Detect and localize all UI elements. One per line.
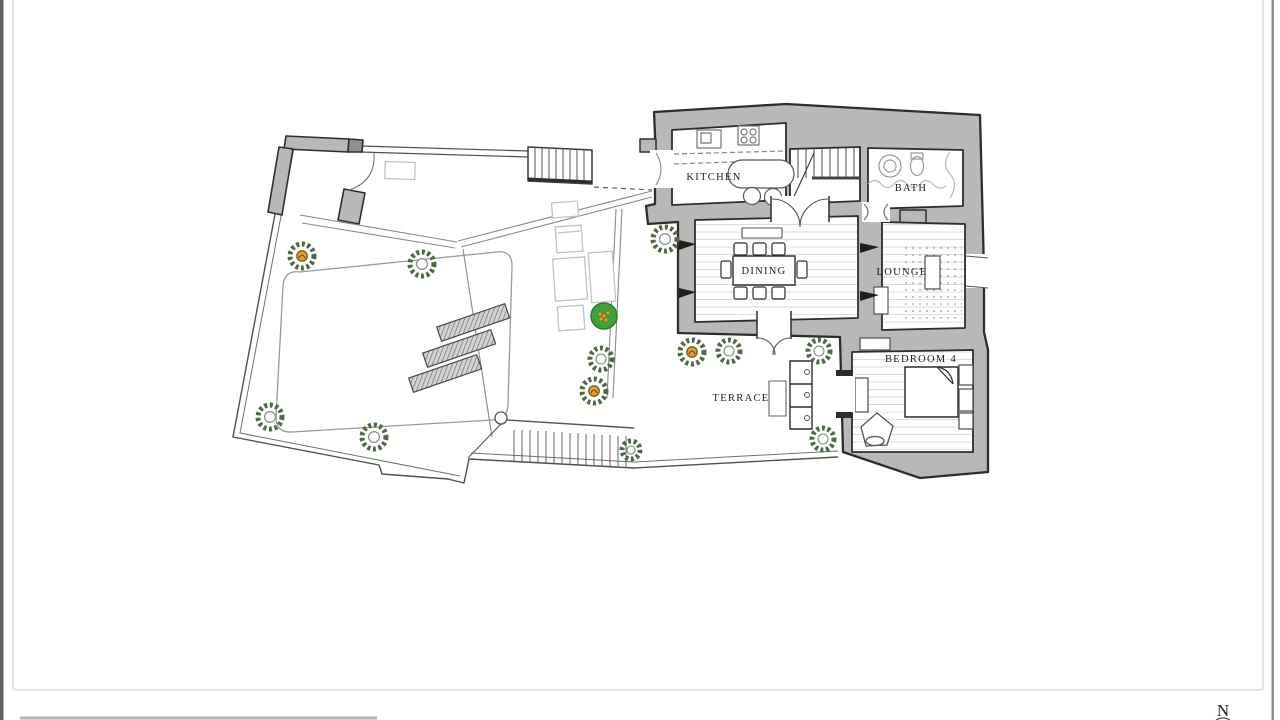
left-edge-strip	[0, 0, 4, 720]
terrace-table	[769, 381, 786, 416]
room-label-terrace: TERRACE	[713, 393, 770, 404]
garden-entry-structure	[268, 136, 374, 224]
plant-bush-icon	[591, 303, 617, 329]
room-stairwell	[790, 147, 860, 204]
sideboard	[742, 228, 782, 238]
terrace-counter	[790, 361, 812, 429]
plant-ring-icon	[622, 441, 640, 459]
page: KITCHENBATHDININGLOUNGETERRACEBEDROOM 4 …	[0, 0, 1280, 720]
plant-ring-icon	[808, 340, 830, 362]
room-label-bedroom4: BEDROOM 4	[885, 354, 957, 365]
floor-plan-svg: KITCHENBATHDININGLOUNGETERRACEBEDROOM 4 …	[0, 0, 1280, 720]
compass: N	[1211, 701, 1235, 720]
plant-accent-icon	[582, 379, 606, 403]
compass-north-label: N	[1217, 701, 1229, 720]
plant-ring-icon	[653, 227, 677, 251]
plant-accent-icon	[680, 340, 704, 364]
door-swing-arc	[349, 153, 374, 190]
room-label-bath: BATH	[895, 183, 928, 194]
dashed-link-line	[594, 187, 652, 190]
garden-top-wall	[360, 146, 528, 157]
terrace-fixtures	[769, 361, 812, 429]
room-label-dining: DINING	[741, 266, 786, 277]
page-frame	[0, 0, 1274, 720]
newel-post	[495, 412, 507, 424]
lounge-wall-bump	[900, 210, 926, 223]
right-edge-strip	[1272, 0, 1275, 720]
terrace-door-arcs	[758, 338, 790, 355]
garden-upper-stairs	[528, 147, 652, 190]
building-layer	[640, 104, 988, 478]
room-label-kitchen: KITCHEN	[686, 172, 741, 183]
plant-ring-icon	[362, 425, 386, 449]
plant-ring-icon	[718, 340, 740, 362]
room-label-lounge: LOUNGE	[877, 267, 928, 278]
content-frame	[13, 0, 1263, 690]
plant-ring-icon	[812, 428, 834, 450]
plant-accent-icon	[290, 244, 314, 268]
